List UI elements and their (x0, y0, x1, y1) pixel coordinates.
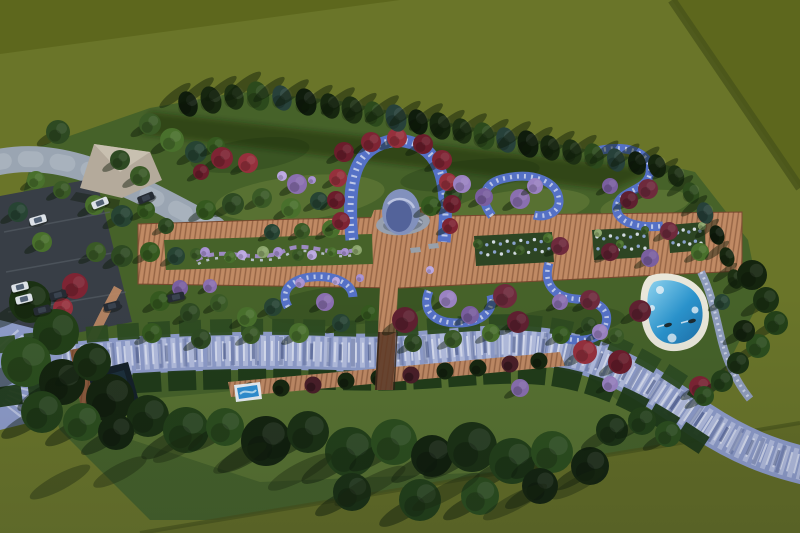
scene-svg (0, 0, 800, 533)
aerial-park-render (0, 0, 800, 533)
layer-root (0, 0, 800, 533)
vignette-overlay (0, 0, 800, 533)
